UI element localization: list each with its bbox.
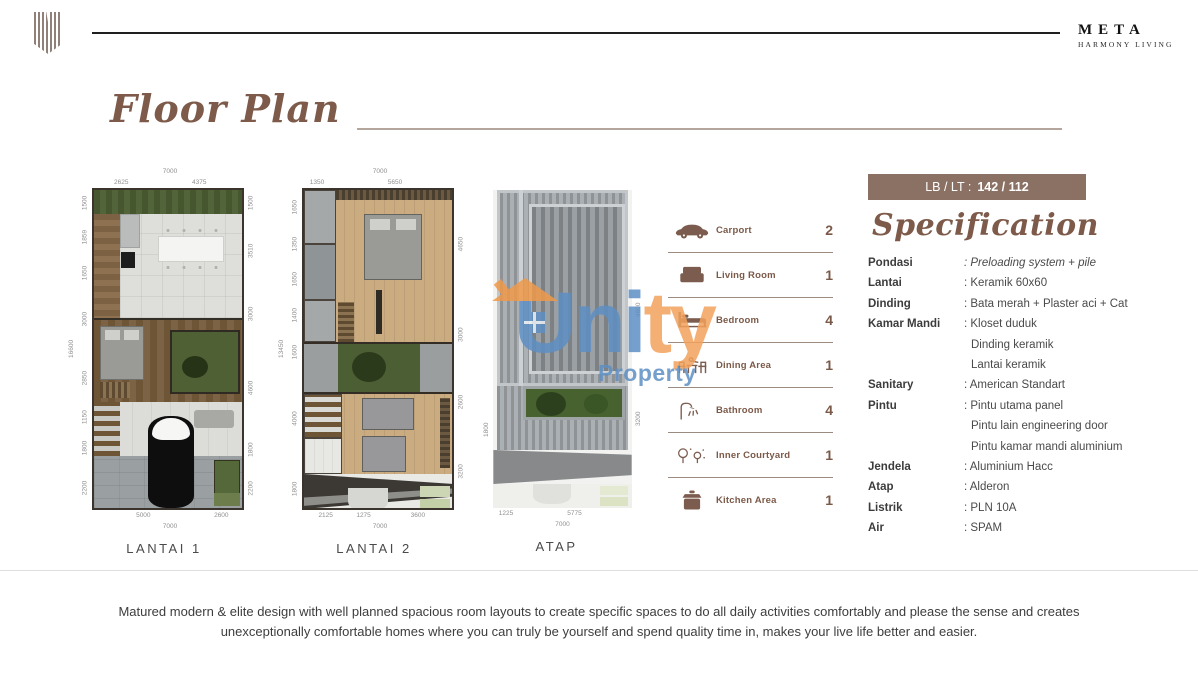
spec-row-atap: Atap : Alderon xyxy=(868,477,1158,497)
planter xyxy=(600,486,628,495)
spec-label: Sanitary xyxy=(868,375,964,395)
dim-label: 1275 xyxy=(349,512,377,519)
legend-count: 4 xyxy=(813,312,833,328)
inner-courtyard xyxy=(170,330,240,394)
legend-label: Inner Courtyard xyxy=(716,450,813,461)
legend-row-inner-courtyard: Inner Courtyard 1 xyxy=(668,432,833,477)
legend-row-kitchen-area: Kitchen Area 1 xyxy=(668,477,833,522)
spec-label: Listrik xyxy=(868,498,964,518)
floor-plan-lantai-2: 7000 1350 5650 13450 1650 1350 1650 1400… xyxy=(276,166,472,556)
header-rule xyxy=(92,32,1060,34)
roof-slope xyxy=(493,450,631,484)
bed xyxy=(362,436,406,472)
slide-canvas: META HARMONY LIVING Floor Plan 7000 2625… xyxy=(0,0,1198,673)
dim-label: 3600 xyxy=(378,512,458,519)
dim-label: 7000 xyxy=(302,168,458,175)
spec-value: Pintu lain engineering door xyxy=(964,416,1158,436)
dim-label: 3200 xyxy=(632,370,645,468)
spec-label: Jendela xyxy=(868,457,964,477)
legend-count: 1 xyxy=(813,447,833,463)
planter xyxy=(600,497,628,506)
specification-panel: LB / LT : 142 / 112 Specification Pondas… xyxy=(868,174,1158,539)
dim-label: 1800 xyxy=(288,467,302,510)
roof-seam xyxy=(519,190,523,386)
dim-label: 1400 xyxy=(288,299,302,333)
dim-label: 1150 xyxy=(78,406,92,429)
dim-label: 1800 xyxy=(78,430,92,466)
legend-row-bathroom: Bathroom 4 xyxy=(668,387,833,432)
spec-label: Atap xyxy=(868,477,964,497)
dims-top-overall: 7000 xyxy=(302,166,458,177)
dim-label: 1859 xyxy=(78,218,92,255)
page-title: Floor Plan xyxy=(110,86,341,131)
wardrobe xyxy=(100,382,130,398)
dim-label: 7000 xyxy=(92,168,248,175)
spec-row-pondasi: Pondasi : Preloading system + pile xyxy=(868,253,1158,273)
brand-tagline: HARMONY LIVING xyxy=(1078,40,1196,49)
planter xyxy=(420,486,450,497)
bathroom xyxy=(304,244,336,300)
kitchen-counter xyxy=(120,214,140,248)
dim-label: 7000 xyxy=(92,523,248,530)
pot-icon xyxy=(668,490,716,510)
dims-bottom-segments: 2125 1275 3600 xyxy=(302,510,458,521)
spec-row-lantai: Lantai : Keramik 60x60 xyxy=(868,273,1158,293)
spec-label: Pondasi xyxy=(868,253,964,273)
spec-row-dinding: Dinding : Bata merah + Plaster aci + Cat xyxy=(868,294,1158,314)
dim-label: 5775 xyxy=(518,510,631,517)
dims-left: 1800 xyxy=(480,190,493,508)
closet xyxy=(338,302,354,342)
legend-row-dining-area: Dining Area 1 xyxy=(668,342,833,387)
dim-label: 2600 xyxy=(454,371,468,433)
dim-label: 1800 xyxy=(480,400,493,460)
footer-line-1: Matured modern & elite design with well … xyxy=(60,602,1138,622)
brand-name: META xyxy=(1078,22,1196,39)
title-underline xyxy=(357,128,1062,130)
spec-row-sanitary: Sanitary : American Standart xyxy=(868,375,1158,395)
badge-value: 142 / 112 xyxy=(977,180,1028,194)
spec-value: : American Standart xyxy=(964,375,1158,395)
dining-chairs xyxy=(160,264,222,271)
badge-prefix: LB / LT : xyxy=(925,180,971,194)
legend-count: 1 xyxy=(813,492,833,508)
spec-value: : Bata merah + Plaster aci + Cat xyxy=(964,294,1158,314)
footer-paragraph: Matured modern & elite design with well … xyxy=(60,602,1138,642)
legend-row-living-room: Living Room 1 xyxy=(668,252,833,297)
spec-label: Dinding xyxy=(868,294,964,314)
legend-label: Dining Area xyxy=(716,360,813,371)
spec-label: Kamar Mandi xyxy=(868,314,964,375)
spec-value: : Kloset duduk xyxy=(964,314,1158,334)
dim-label: 1800 xyxy=(244,432,258,467)
dims-right: 4600 3200 xyxy=(632,190,645,508)
floor-plan-lantai-1: 7000 2625 4375 16600 1500 1859 1650 3000… xyxy=(66,166,262,556)
roof-edge-zone xyxy=(493,450,631,484)
dining-island-table xyxy=(158,236,224,262)
wardrobe xyxy=(336,190,452,200)
bathroom xyxy=(304,190,336,244)
legend-row-carport: Carport 2 xyxy=(668,208,833,252)
dining-icon xyxy=(668,355,716,375)
dim-label: 16600 xyxy=(66,188,77,510)
legend-label: Carport xyxy=(716,225,813,236)
dim-label: 2625 xyxy=(92,179,151,186)
dims-bottom-overall: 7000 xyxy=(92,521,248,532)
dim-label: 4600 xyxy=(632,250,645,370)
spec-value: Lantai keramik xyxy=(964,355,1158,375)
dim-label: 3200 xyxy=(454,433,468,510)
spec-value: : Pintu utama panel xyxy=(964,396,1158,416)
ground-zone xyxy=(493,484,631,508)
spec-value: : Preloading system + pile xyxy=(964,253,1158,273)
spec-value: Dinding keramik xyxy=(964,335,1158,355)
inner-courtyard xyxy=(338,344,420,392)
dims-bottom-overall: 7000 xyxy=(302,521,458,532)
dim-label: 1225 xyxy=(494,510,518,517)
stairs xyxy=(94,402,120,456)
roof-inner-panel xyxy=(529,204,625,374)
dim-label: 1650 xyxy=(288,188,302,228)
spec-label: Pintu xyxy=(868,396,964,457)
room-legend: Carport 2 Living Room 1 Bedroom 4 Dining… xyxy=(668,208,833,522)
legend-row-bedroom: Bedroom 4 xyxy=(668,297,833,342)
dims-right: 4650 3000 2600 3200 xyxy=(454,188,468,510)
dim-label: 7000 xyxy=(302,523,458,530)
spec-value: : Aluminium Hacc xyxy=(964,457,1158,477)
planter xyxy=(420,499,450,510)
floor-label: ATAP xyxy=(468,539,645,554)
stove xyxy=(121,252,135,268)
atap-plan-illustration xyxy=(493,190,631,508)
dims-bottom-segments: 1225 5775 xyxy=(494,508,631,519)
spec-value: : PLN 10A xyxy=(964,498,1158,518)
garden-strip xyxy=(94,190,242,214)
wardrobe xyxy=(440,398,450,468)
roof-panel xyxy=(497,420,627,450)
spec-value: Pintu kamar mandi aluminium xyxy=(964,437,1158,457)
dim-label: 4650 xyxy=(454,188,468,299)
dims-bottom-segments: 5000 2600 xyxy=(92,510,248,521)
dim-label: 1350 xyxy=(288,228,302,260)
footer-line-2: unexceptionally comfortable homes where … xyxy=(60,622,1138,642)
shower-icon xyxy=(668,400,716,420)
legend-label: Bedroom xyxy=(716,315,813,326)
dim-label: 1600 xyxy=(288,333,302,371)
dims-top-segments: 1350 5650 xyxy=(302,177,458,188)
dims-top-segments: 2625 4375 xyxy=(92,177,248,188)
dim-label: 4375 xyxy=(151,179,249,186)
spec-row-jendela: Jendela : Aluminium Hacc xyxy=(868,457,1158,477)
bed xyxy=(362,398,414,430)
bathroom xyxy=(304,300,336,342)
dim-label: 3000 xyxy=(78,289,92,349)
roof-edge-zone xyxy=(304,474,452,510)
sofa xyxy=(194,410,234,428)
floor-plan-atap: 1800 4600 xyxy=(468,166,645,554)
legend-count: 4 xyxy=(813,402,833,418)
wall-partition xyxy=(376,290,382,334)
sofa-icon xyxy=(668,265,716,285)
footer-divider xyxy=(0,570,1198,571)
dim-label: 3000 xyxy=(454,299,468,371)
legend-count: 1 xyxy=(813,357,833,373)
lb-lt-badge: LB / LT : 142 / 112 xyxy=(868,174,1086,200)
dim-label: 2125 xyxy=(302,512,349,519)
spec-row-listrik: Listrik : PLN 10A xyxy=(868,498,1158,518)
planter xyxy=(214,493,240,506)
dim-label: 1500 xyxy=(244,188,258,217)
dim-label: 2200 xyxy=(78,466,92,510)
dims-right: 1500 3510 3000 4600 1800 2200 xyxy=(244,188,258,510)
dim-label: 4000 xyxy=(288,371,302,467)
bed-icon xyxy=(668,310,716,330)
legend-count: 1 xyxy=(813,267,833,283)
car xyxy=(148,416,194,508)
dim-label: 3510 xyxy=(244,217,258,285)
dim-label: 1500 xyxy=(78,188,92,218)
dims-top-overall: 7000 xyxy=(92,166,248,177)
dim-label: 2200 xyxy=(244,467,258,510)
entry-path xyxy=(348,488,388,510)
spec-row-pintu: Pintu : Pintu utama panel Pintu lain eng… xyxy=(868,396,1158,457)
dim-label: 1350 xyxy=(302,179,332,186)
dims-bottom-overall: 7000 xyxy=(494,519,631,530)
meta-monogram-logo-icon xyxy=(34,12,62,54)
spec-value: : Keramik 60x60 xyxy=(964,273,1158,293)
legend-label: Living Room xyxy=(716,270,813,281)
dim-label: 5650 xyxy=(332,179,458,186)
spec-value: : SPAM xyxy=(964,518,1158,538)
legend-count: 2 xyxy=(813,222,833,238)
legend-label: Bathroom xyxy=(716,405,813,416)
dim-label: 5000 xyxy=(92,512,195,519)
entry-path xyxy=(533,484,571,504)
dim-label: 13450 xyxy=(276,188,287,510)
bed xyxy=(100,326,144,380)
courtyard-opening xyxy=(523,386,625,420)
specification-heading: Specification xyxy=(872,208,1158,243)
spec-row-kamar-mandi: Kamar Mandi : Kloset duduk Dinding keram… xyxy=(868,314,1158,375)
floor-label: LANTAI 2 xyxy=(276,541,472,556)
lantai-2-plan-illustration xyxy=(302,188,454,510)
dim-label: 7000 xyxy=(494,521,631,528)
dim-label: 2850 xyxy=(78,349,92,406)
floor-label: LANTAI 1 xyxy=(66,541,262,556)
dining-chairs xyxy=(160,227,222,234)
legend-label: Kitchen Area xyxy=(716,495,813,506)
lantai-1-plan-illustration xyxy=(92,188,244,510)
brand-block: META HARMONY LIVING xyxy=(1078,22,1196,49)
stairs xyxy=(304,394,342,438)
dim-label: 1650 xyxy=(78,256,92,289)
bed xyxy=(364,214,422,280)
dim-label: 4600 xyxy=(244,343,258,432)
spec-value: : Alderon xyxy=(964,477,1158,497)
car-icon xyxy=(668,220,716,240)
spec-label: Air xyxy=(868,518,964,538)
dim-label: 2600 xyxy=(195,512,248,519)
dim-label: 3000 xyxy=(244,285,258,343)
courtyard-icon xyxy=(668,445,716,465)
bathroom xyxy=(304,438,342,474)
dim-label: 1650 xyxy=(288,260,302,300)
spec-row-air: Air : SPAM xyxy=(868,518,1158,538)
dims-left: 1500 1859 1650 3000 2850 1150 1800 2200 xyxy=(78,188,92,510)
dims-left: 1650 1350 1650 1400 1600 4000 1800 xyxy=(288,188,302,510)
spec-label: Lantai xyxy=(868,273,964,293)
